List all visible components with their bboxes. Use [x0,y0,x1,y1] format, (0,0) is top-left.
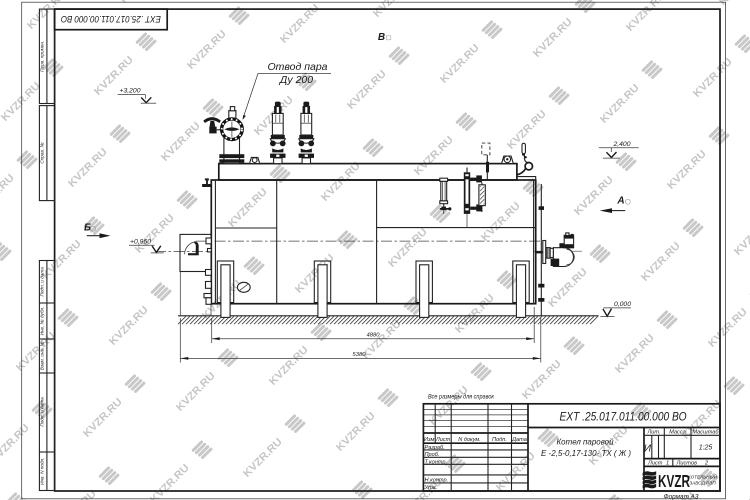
svg-text:KVZR.RU: KVZR.RU [438,42,482,86]
svg-text:Перв. примен.: Перв. примен. [40,41,45,72]
svg-text:И: И [644,444,652,455]
svg-text:KVZR.RU: KVZR.RU [531,16,575,60]
svg-text:В: В [378,32,385,43]
svg-text:KVZR.RU: KVZR.RU [386,226,430,270]
svg-text:Инв. N подл.: Инв. N подл. [40,457,45,484]
svg-text:KVZR.RU: KVZR.RU [267,344,311,388]
svg-text:Все размеры для справок: Все размеры для справок [428,394,495,400]
svg-text:KVZR.RU: KVZR.RU [14,330,58,374]
svg-text:Подп. и дата: Подп. и дата [40,267,45,297]
svg-text:Подп. и дата: Подп. и дата [40,397,45,427]
svg-text:Изм: Изм [424,437,435,443]
svg-text:KVZR.RU: KVZR.RU [453,292,497,336]
svg-text:Утв.: Утв. [424,485,438,491]
svg-text:0,000: 0,000 [614,301,631,308]
svg-text:KVZR.RU: KVZR.RU [334,410,378,454]
svg-text:KVZR.RU: KVZR.RU [613,332,657,376]
svg-text:Ду 200: Ду 200 [279,74,313,86]
svg-text:Е -2,5-0,17-130- ТХ ( Ж ): Е -2,5-0,17-130- ТХ ( Ж ) [541,448,631,458]
svg-text:Котел паровой: Котел паровой [557,437,614,447]
svg-text:KVZR.RU: KVZR.RU [345,68,389,112]
svg-text:KVZR.RU: KVZR.RU [319,160,363,204]
svg-text:KVZR.RU: KVZR.RU [360,318,404,362]
svg-text:KVZR.RU: KVZR.RU [174,370,218,414]
svg-text:KVZR.RU: KVZR.RU [226,186,270,230]
svg-text:Лист: Лист [435,437,451,443]
svg-text:KVZR.RU: KVZR.RU [0,422,32,466]
svg-text:KVZR.RU: KVZR.RU [717,0,750,8]
svg-text:KVZR.RU: KVZR.RU [639,240,683,284]
svg-text:KVZR.RU: KVZR.RU [505,108,549,152]
svg-text:2,400: 2,400 [612,141,630,148]
svg-text:KVZR.RU: KVZR.RU [494,450,538,494]
svg-text:Листов: Листов [676,461,697,467]
svg-text:KVZR.RU: KVZR.RU [81,396,125,440]
svg-text:ЕХТ .25.017.011.00.000 ВО: ЕХТ .25.017.011.00.000 ВО [560,412,687,424]
svg-text:KVZR.RU: KVZR.RU [107,304,151,348]
svg-text:Б: Б [84,223,91,234]
svg-text:KVZR.RU: KVZR.RU [427,384,471,428]
svg-text:Масштаб: Масштаб [692,429,719,435]
svg-text:5380: 5380 [353,352,367,358]
svg-text:N докум.: N докум. [458,437,481,443]
svg-text:KVZR.RU: KVZR.RU [118,0,162,6]
svg-text:Проб.: Проб. [425,452,440,458]
svg-text:ЕХТ .25.017.011.00.000 ВО: ЕХТ .25.017.011.00.000 ВО [61,14,161,24]
svg-text:KVZR.RU: KVZR.RU [412,134,456,178]
svg-text:KVZR.RU: KVZR.RU [0,172,17,216]
svg-text:KVZR.RU: KVZR.RU [479,200,523,244]
svg-text:Разраб.: Разраб. [425,445,445,451]
svg-text:4880: 4880 [367,333,381,339]
svg-text:Лит.: Лит. [646,429,660,435]
svg-text:КОТЕЛЬНЫЙ: КОТЕЛЬНЫЙ [688,473,718,480]
svg-text:KVZR.RU: KVZR.RU [520,358,564,402]
svg-text:Подп.: Подп. [492,437,507,443]
svg-text:Взам. инв. №: Взам. инв. № [40,341,45,370]
svg-text:KVZR.RU: KVZR.RU [159,120,203,164]
svg-text:KVZR.RU: KVZR.RU [148,462,192,500]
svg-text:+0,960: +0,960 [130,238,151,245]
svg-text:ЗАВОД РЭП: ЗАВОД РЭП [689,481,716,486]
svg-text:Отвод пара: Отвод пара [267,61,327,73]
svg-text:KVZR.RU: KVZR.RU [66,146,110,190]
svg-text:Инв. № дубл.: Инв. № дубл. [40,307,45,336]
svg-text:KVZR: KVZR [658,471,690,491]
svg-text:1: 1 [666,461,669,467]
svg-text:Справ. №: Справ. № [40,142,45,163]
svg-text:KVZR.RU: KVZR.RU [665,148,709,192]
svg-text:Дата: Дата [511,437,527,443]
svg-text:Т.контр.: Т.контр. [425,460,448,466]
svg-text:Масса: Масса [669,429,686,435]
svg-text:1:25: 1:25 [699,445,713,452]
svg-text:Формат А3: Формат А3 [664,493,699,500]
svg-text:KVZR.RU: KVZR.RU [241,436,285,480]
svg-text:KVZR.RU: KVZR.RU [732,214,750,258]
svg-text:KVZR.RU: KVZR.RU [185,28,229,72]
svg-text:Н.контр.: Н.контр. [425,478,449,484]
svg-text:KVZR.RU: KVZR.RU [598,82,642,126]
svg-text:KVZR.RU: KVZR.RU [546,266,590,310]
svg-text:KVZR.RU: KVZR.RU [691,56,735,100]
svg-text:KVZR.RU: KVZR.RU [706,306,750,350]
svg-text:+3,200: +3,200 [120,88,141,95]
svg-text:Лист: Лист [647,461,663,467]
svg-text:А: А [616,196,624,207]
svg-text:KVZR.RU: KVZR.RU [624,0,668,34]
svg-text:KVZR.RU: KVZR.RU [55,488,99,500]
